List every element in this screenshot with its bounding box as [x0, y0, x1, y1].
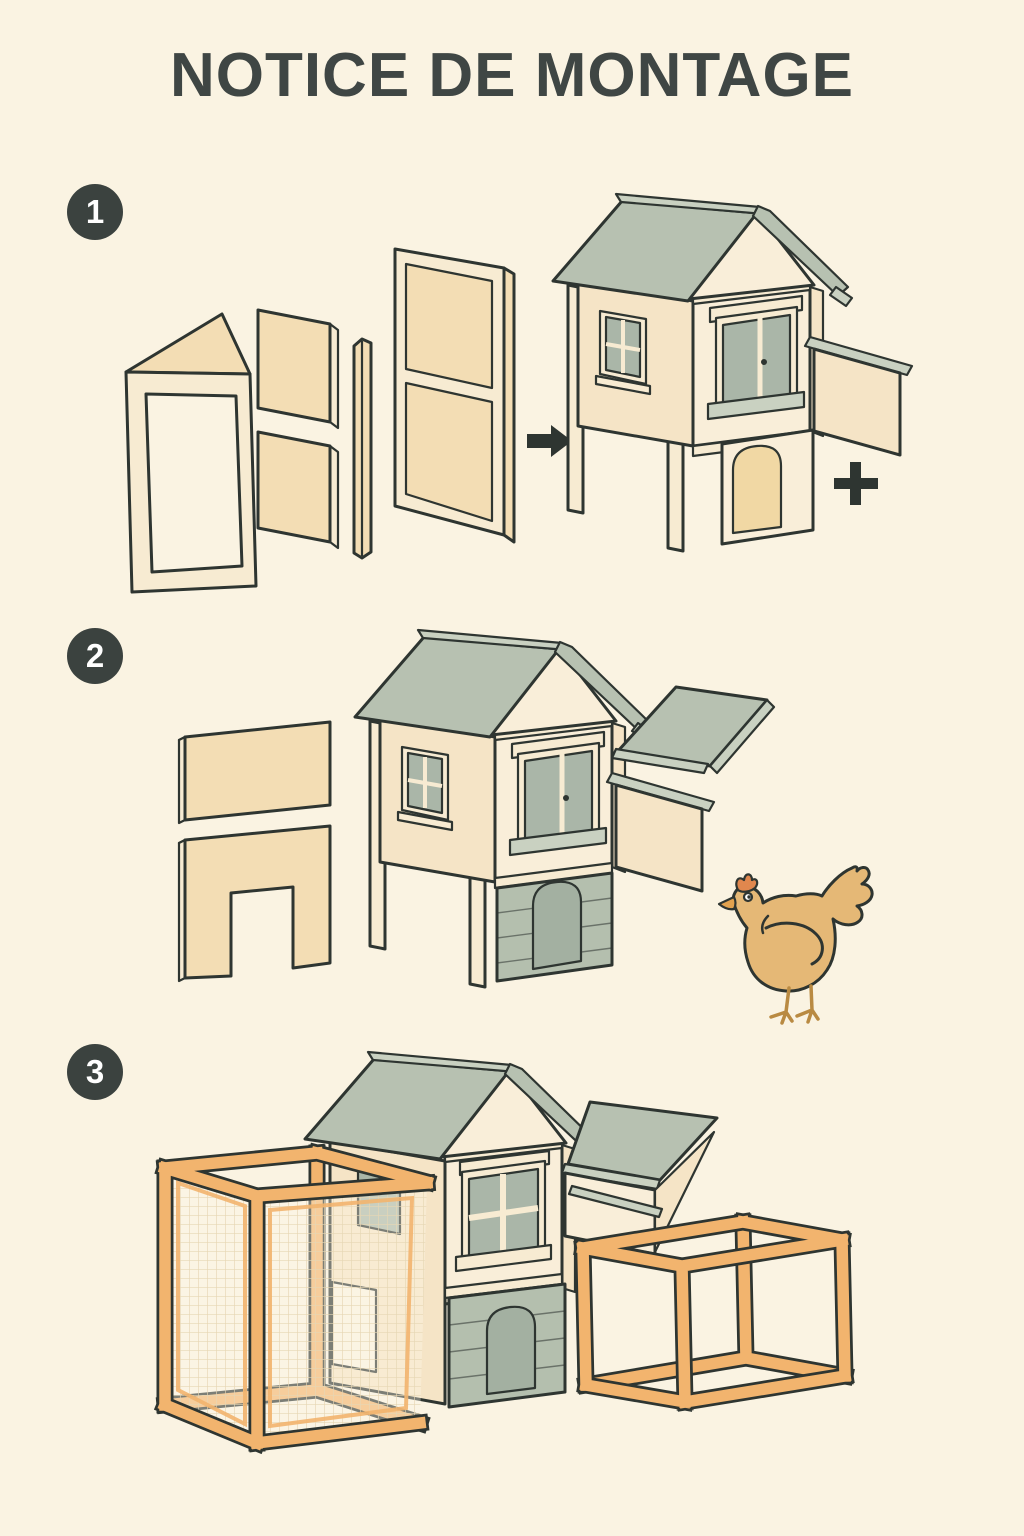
small-panel-bottom	[258, 432, 338, 548]
support-stick	[354, 339, 371, 558]
open-run-frame-right	[583, 1222, 845, 1402]
side-window	[398, 747, 452, 830]
planked-lower-level	[449, 1284, 565, 1407]
page-title: NOTICE DE MONTAGE	[0, 40, 1024, 111]
front-window	[708, 296, 804, 419]
plus-icon	[834, 462, 878, 505]
mesh-panel-front	[257, 1183, 427, 1443]
arched-door	[733, 446, 781, 533]
assembly-instructions-page: NOTICE DE MONTAGE 1 2 3	[0, 0, 1024, 1536]
doorway-panel	[179, 826, 330, 981]
chicken-illustration	[719, 867, 872, 1023]
loose-roof-panel	[612, 687, 774, 773]
mesh-run-left	[165, 1153, 427, 1443]
rectangular-panel	[179, 722, 330, 823]
corner-frame-panel	[126, 314, 256, 592]
step-3-illustration	[0, 1040, 1024, 1536]
arched-door	[533, 882, 581, 969]
arrow-right-icon	[527, 425, 572, 457]
nesting-box	[805, 337, 912, 455]
front-window	[456, 1151, 551, 1271]
step-1-illustration	[0, 150, 1024, 620]
step-2-illustration	[0, 620, 1024, 1040]
planked-lower-level	[497, 873, 612, 981]
nesting-box	[607, 773, 714, 891]
framed-door-panel	[395, 249, 514, 542]
arched-door	[487, 1307, 535, 1394]
side-window	[596, 311, 650, 394]
chicken-beak	[719, 897, 736, 909]
front-window	[510, 732, 606, 855]
coop-house-stage2	[355, 630, 774, 987]
small-panel-top	[258, 310, 338, 428]
chicken-comb	[736, 874, 757, 891]
